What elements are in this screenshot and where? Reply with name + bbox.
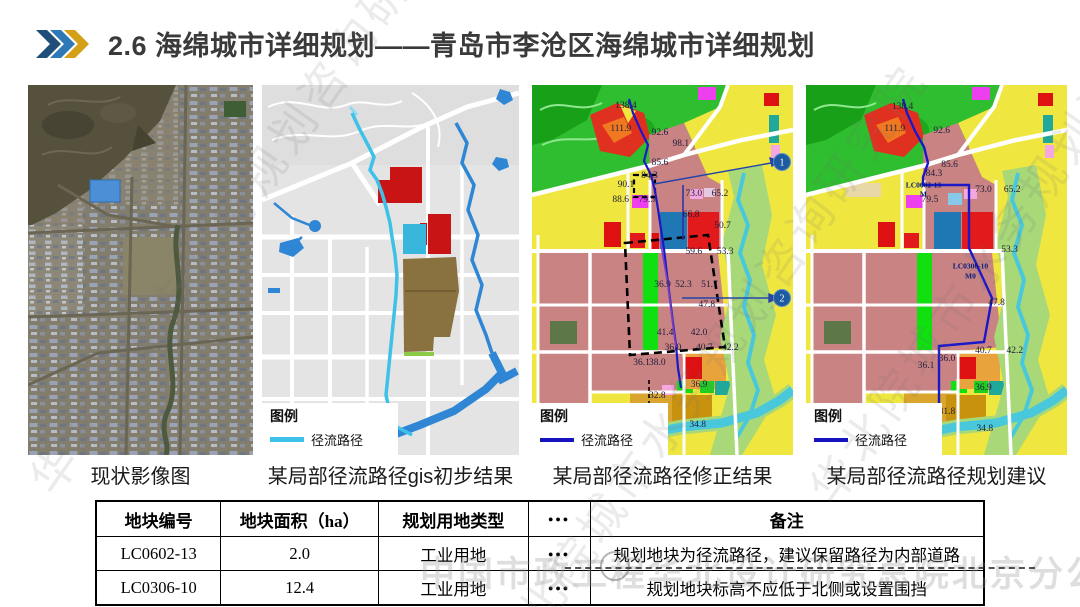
caption-gis-preliminary: 某局部径流路径gis初步结果 [262,460,519,489]
runoff-path-label: 径流路径 [855,430,907,449]
runoff-path-label: 径流路径 [581,430,633,449]
satellite-image [28,85,253,455]
legend-title: 图例 [814,406,936,426]
landuse-map-recommendation-graphic [806,85,1067,455]
table-cell: LC0306-10 [96,571,221,606]
table-cell: 工业用地 [379,571,529,606]
panel-corrected-result: 1 2 138.4111.992.698.185.684.390.188.679… [532,85,793,455]
gis-map-graphic [262,85,519,455]
runoff-path-swatch [540,438,574,442]
maps-row: 图例 径流路径 [0,85,1080,455]
panel-gis-preliminary: 图例 径流路径 [262,85,519,455]
legend-recommendation: 图例 径流路径 [806,403,942,455]
table-header-cell: ●●● [528,501,590,537]
runoff-path-label: 径流路径 [311,430,363,449]
slide-header: 2.6 海绵城市详细规划——青岛市李沧区海绵城市详细规划 [36,24,815,63]
landuse-map-corrected: 1 2 [532,85,793,455]
table-cell: ●●● [528,571,590,606]
table-header-cell: 地块面积（ha） [221,501,379,537]
legend-corrected: 图例 径流路径 [532,403,668,455]
table-cell: LC0602-13 [96,537,221,571]
triple-chevron-icon [36,29,94,59]
table-cell: 规划地块标高不应低于北侧或设置围挡 [590,571,984,606]
table-row: LC0602-132.0工业用地●●●规划地块为径流路径，建议保留路径为内部道路 [96,537,984,571]
caption-planning-recommendation: 某局部径流路径规划建议 [806,460,1067,489]
marker-circle-1: 1 [774,154,791,171]
table-cell: 2.0 [221,537,379,571]
runoff-path-swatch [814,438,848,442]
marker-number: 1 [780,158,785,169]
table-header-row: 地块编号地块面积（ha）规划用地类型●●●备注 [96,501,984,537]
caption-satellite: 现状影像图 [28,460,253,489]
table-cell: 12.4 [221,571,379,606]
marker-circle-2: 2 [774,290,791,307]
runoff-path-swatch [270,437,304,442]
marker-number: 2 [780,294,785,305]
slide: 2.6 海绵城市详细规划——青岛市李沧区海绵城市详细规划 [0,0,1080,607]
table-cell: ●●● [528,537,590,571]
legend-title: 图例 [540,406,662,426]
parcel-table: 地块编号地块面积（ha）规划用地类型●●●备注 LC0602-132.0工业用地… [95,500,985,606]
panel-planning-recommendation: 138.4111.992.685.684.3LC0602-13M79.573.0… [806,85,1067,455]
table-body: LC0602-132.0工业用地●●●规划地块为径流路径，建议保留路径为内部道路… [96,537,984,606]
table-cell: 工业用地 [379,537,529,571]
satellite-map-graphic [28,85,253,455]
table-header-cell: 规划用地类型 [379,501,529,537]
caption-corrected-result: 某局部径流路径修正结果 [532,460,793,489]
table-row: LC0306-1012.4工业用地●●●规划地块标高不应低于北侧或设置围挡 [96,571,984,606]
parcel-table-wrap: 地块编号地块面积（ha）规划用地类型●●●备注 LC0602-132.0工业用地… [95,500,985,606]
landuse-map-corrected-graphic: 1 2 [532,85,793,455]
legend-title: 图例 [270,406,392,426]
table-cell: 规划地块为径流路径，建议保留路径为内部道路 [590,537,984,571]
table-header-cell: 地块编号 [96,501,221,537]
gis-map [262,85,519,455]
legend-gis: 图例 径流路径 [262,403,398,455]
page-title: 2.6 海绵城市详细规划——青岛市李沧区海绵城市详细规划 [108,24,815,63]
table-header-cell: 备注 [590,501,984,537]
panel-satellite [28,85,253,455]
landuse-map-recommendation [806,85,1067,455]
